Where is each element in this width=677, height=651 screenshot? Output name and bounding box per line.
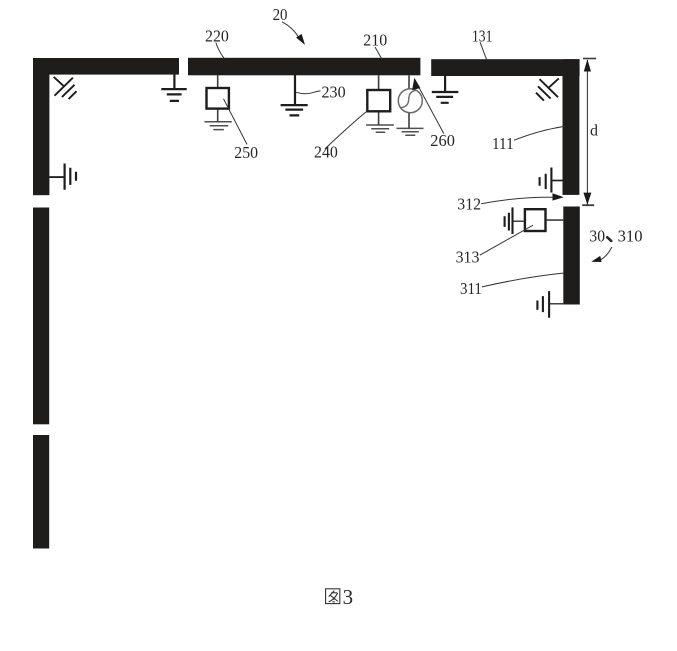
svg-text:312: 312: [457, 194, 481, 213]
svg-text:30: 30: [589, 227, 605, 246]
svg-text:220: 220: [205, 26, 229, 45]
svg-text:3: 3: [343, 585, 354, 609]
svg-text:210: 210: [363, 30, 387, 49]
svg-text:20: 20: [273, 5, 288, 24]
svg-text:230: 230: [322, 82, 346, 101]
svg-text:131: 131: [472, 27, 492, 46]
svg-text:313: 313: [456, 247, 480, 266]
svg-text:250: 250: [234, 143, 258, 162]
svg-text:111: 111: [492, 134, 514, 153]
svg-text:d: d: [590, 123, 598, 140]
svg-text:260: 260: [430, 131, 455, 150]
svg-text:240: 240: [314, 142, 338, 161]
svg-text:310: 310: [618, 227, 643, 246]
svg-text:311: 311: [460, 279, 482, 298]
